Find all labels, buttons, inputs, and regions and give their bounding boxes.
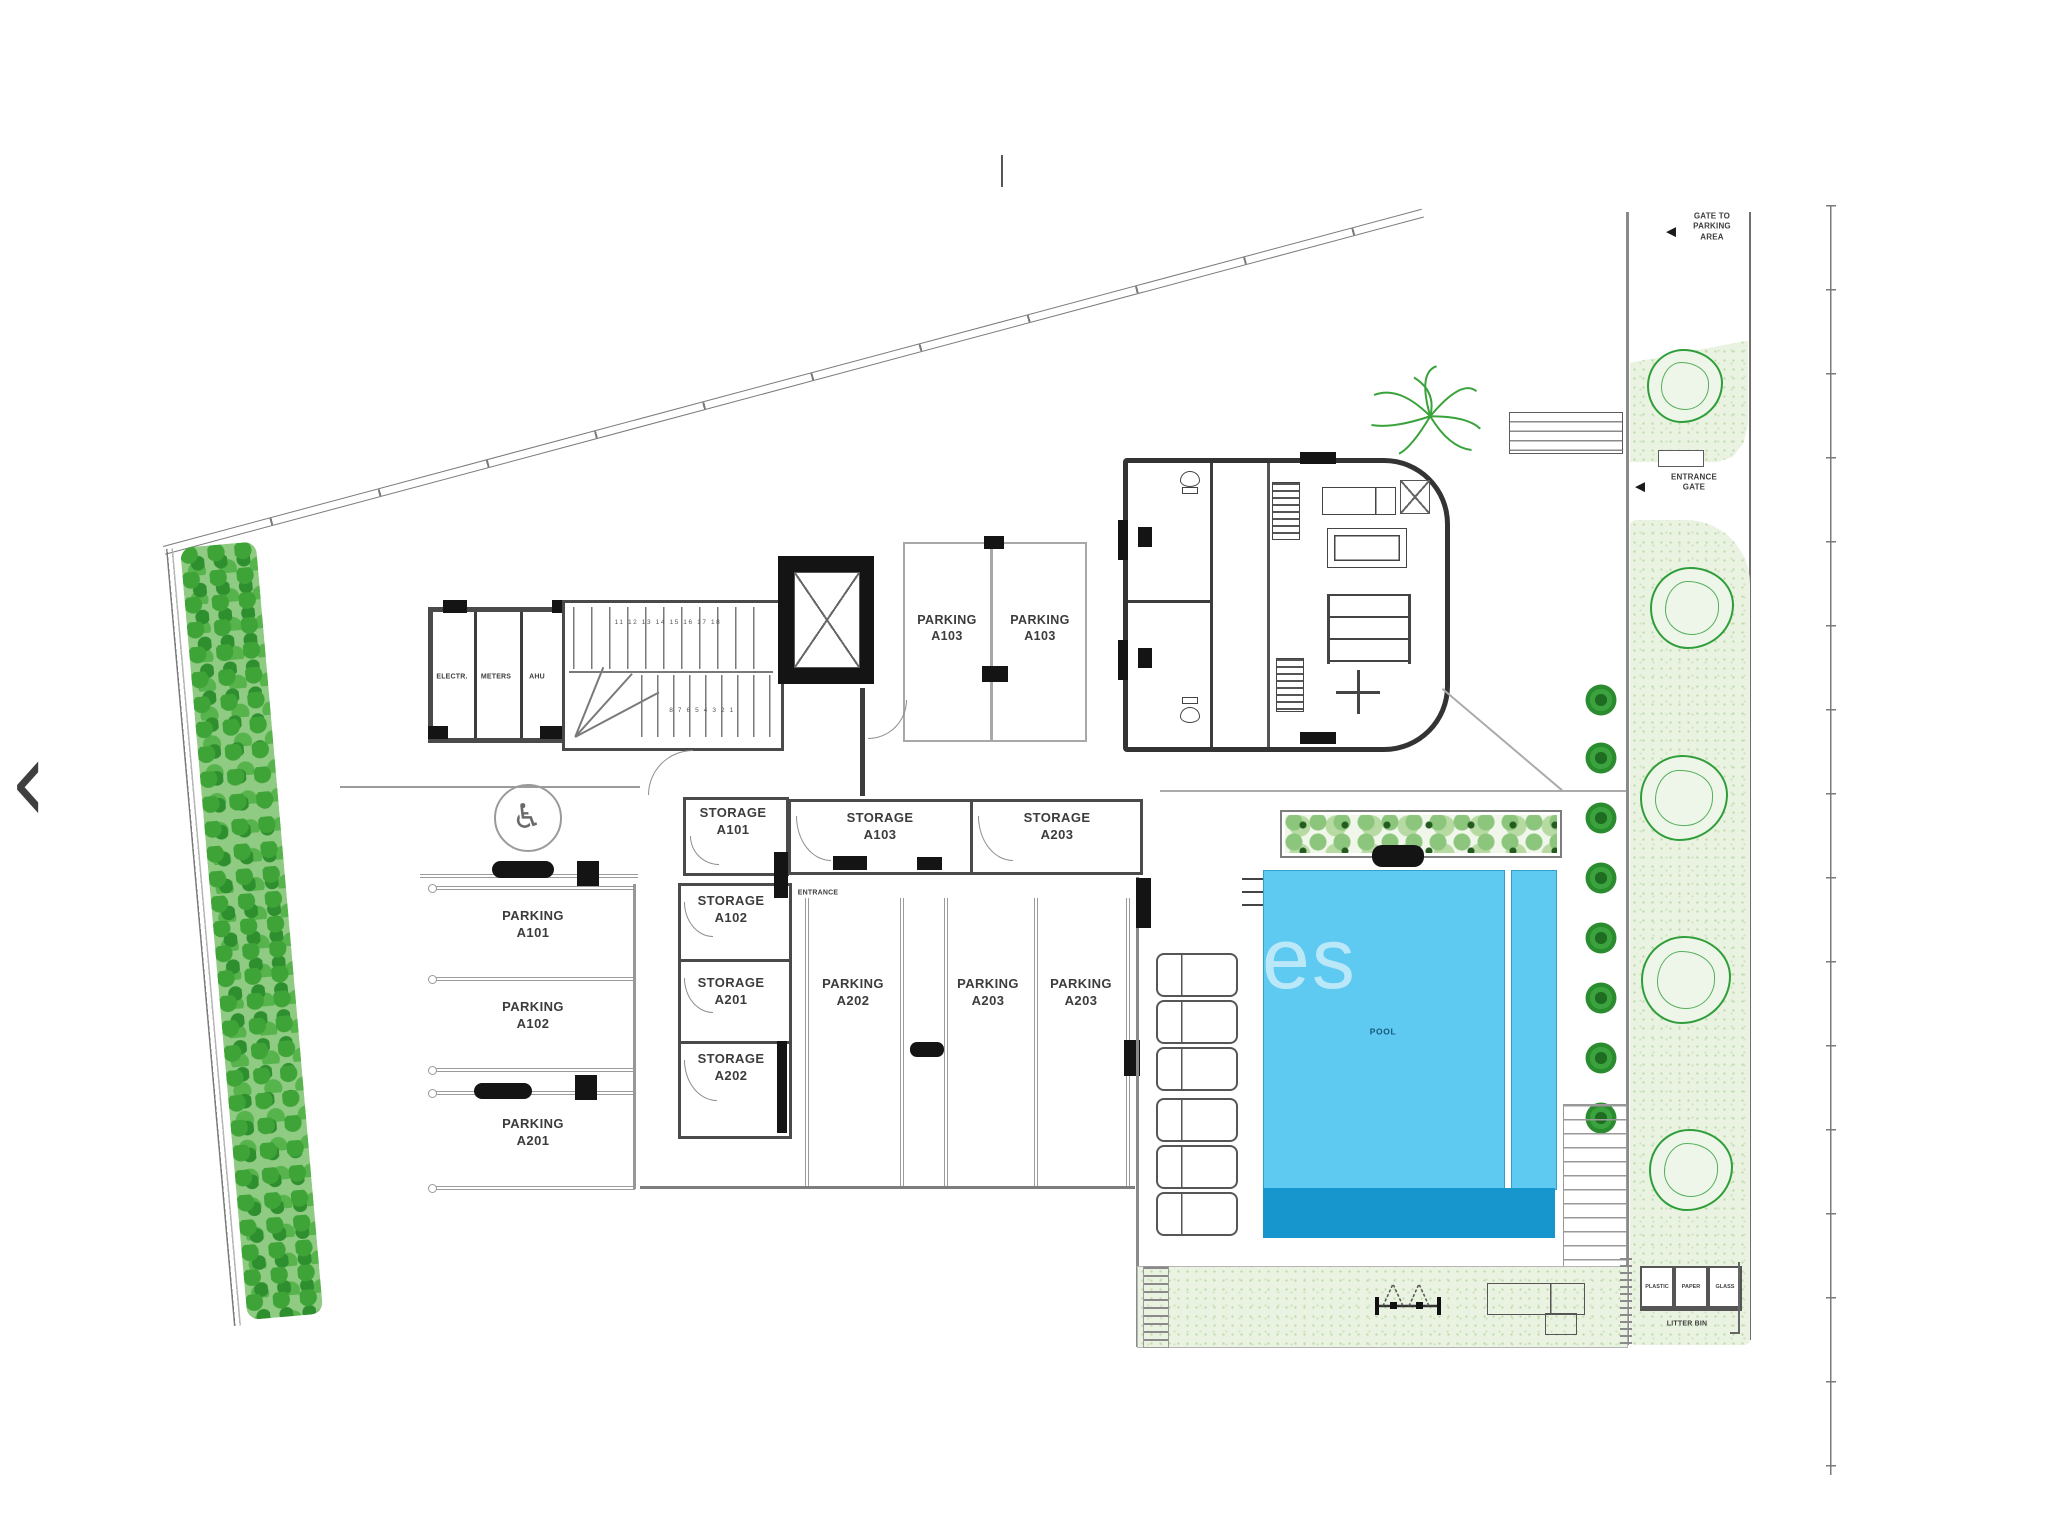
parking-a203-right-label: PARKING A203: [1050, 976, 1112, 1010]
wc-divider-wall: [1128, 600, 1213, 603]
parking-a201-label: PARKING A201: [502, 1116, 564, 1150]
room-label-ahu: AHU: [529, 672, 545, 681]
deck-diagonal-line: [1442, 688, 1563, 791]
dumbbell-rack: [1276, 658, 1304, 712]
stall-line-cap: [428, 1089, 437, 1098]
parking-a101-label: PARKING A101: [502, 908, 564, 942]
stall-line-cap: [428, 884, 437, 893]
picnic-table: [1487, 1283, 1585, 1315]
room-divider: [520, 612, 523, 738]
bracket-line: [1738, 1262, 1740, 1334]
parking-a102-label: PARKING A102: [502, 999, 564, 1033]
litter-bin-label: LITTER BIN: [1667, 1319, 1708, 1328]
wall-column: [428, 726, 448, 739]
pergola-bench: [1509, 412, 1623, 454]
bush-icon: [1582, 800, 1620, 836]
planter-box: [1658, 450, 1704, 467]
room-divider: [474, 612, 477, 738]
stall-line: [435, 886, 635, 890]
sink: [1138, 648, 1152, 668]
wheelchair-icon: ♿: [512, 797, 542, 837]
pool-lap-lane: [1511, 870, 1557, 1190]
floor-plan-canvas: ‹ GATE TO PARKING AREA ◀ ENTRANCE GATE ◀…: [0, 0, 2048, 1536]
previous-image-button[interactable]: ‹: [10, 725, 47, 840]
gate-arrow-icon: ◀: [1666, 225, 1676, 238]
stall-line: [340, 786, 640, 788]
stall-divider: [944, 898, 948, 1186]
bracket-foot: [1730, 1332, 1740, 1334]
stall-line: [435, 1068, 635, 1072]
bin-glass-label: GLASS: [1716, 1284, 1735, 1290]
terrace-steps: [1563, 1104, 1627, 1274]
stall-divider: [900, 898, 904, 1186]
room-label-meters: METERS: [481, 672, 511, 681]
wall-column: [1300, 732, 1336, 744]
wall-column: [577, 861, 599, 887]
swing-set-icon: [1373, 1278, 1443, 1336]
stall-line: [435, 1091, 635, 1095]
corridor-wall: [1267, 463, 1270, 747]
entrance-gate-label: ENTRANCE GATE: [1671, 473, 1717, 494]
room-label-electrical: ELECTR.: [436, 672, 467, 681]
road-survey-line: [1826, 205, 1836, 1475]
pool-label: POOL: [1370, 1026, 1397, 1037]
pool-bench: [1372, 845, 1424, 867]
bush-icon: [1582, 1040, 1620, 1076]
hatched-band: [1143, 1266, 1169, 1348]
door-sill: [833, 856, 867, 870]
sun-lounger: [1156, 1000, 1238, 1044]
dumbbell-rack: [1272, 482, 1300, 540]
bush-icon: [1582, 980, 1620, 1016]
wall-column: [1300, 452, 1336, 464]
palm-plant-icon: [1358, 360, 1490, 460]
toilet-icon: [1180, 471, 1200, 487]
storage-a103-label: STORAGE A103: [847, 810, 914, 844]
stall-divider: [805, 898, 809, 1186]
parking-a103-left-label: PARKING A103: [917, 612, 977, 645]
bin-paper-label: PAPER: [1682, 1284, 1701, 1290]
gate-to-parking-label: GATE TO PARKING AREA: [1693, 211, 1731, 242]
cross-machine: [1336, 670, 1380, 714]
stall-divider: [1034, 898, 1038, 1186]
squat-rack: [1327, 594, 1411, 664]
stall-line-cap: [428, 1184, 437, 1193]
wall-column: [774, 852, 788, 898]
bush-icon: [1582, 860, 1620, 896]
stall-line: [435, 1186, 635, 1190]
picnic-seat: [1545, 1313, 1577, 1335]
bush-icon: [1582, 920, 1620, 956]
car-stopper: [474, 1083, 532, 1099]
wall-column: [575, 1075, 597, 1100]
parking-a202-label: PARKING A202: [822, 976, 884, 1010]
entrance-label: ENTRANCE: [798, 888, 839, 897]
wall-column: [1118, 520, 1128, 560]
car-stopper: [984, 536, 1004, 549]
treadmill: [1322, 487, 1396, 515]
car-stopper: [982, 666, 1008, 682]
bin-plastic: PLASTIC: [1640, 1266, 1674, 1311]
car-stopper: [910, 1042, 944, 1057]
stair-numbers-lower: 8 7 6 5 4 3 2 1: [669, 707, 735, 715]
stair-steps-upper: [573, 607, 771, 669]
bin-plastic-label: PLASTIC: [1645, 1284, 1669, 1290]
wall-column: [443, 600, 467, 613]
door-swing-arc: [868, 700, 907, 739]
wall-column: [1118, 640, 1128, 680]
stall-divider: [990, 544, 993, 740]
door-swing-arc: [648, 750, 693, 795]
parking-a103-right-label: PARKING A103: [1010, 612, 1070, 645]
gym-bench: [1327, 528, 1407, 568]
building-south-edge: [640, 1186, 1135, 1189]
toilet-tank: [1182, 487, 1198, 494]
storage-a101-label: STORAGE A101: [700, 805, 767, 839]
stair-numbers-upper: 11 12 13 14 15 16 17 18: [615, 619, 722, 627]
stall-line-cap: [428, 1066, 437, 1075]
stall-line: [435, 977, 635, 981]
survey-tick: [1001, 155, 1003, 187]
bin-paper: PAPER: [1674, 1266, 1708, 1311]
parking-a203-left-label: PARKING A203: [957, 976, 1019, 1010]
entrance-gate-arrow-icon: ◀: [1635, 480, 1645, 493]
sun-lounger: [1156, 1047, 1238, 1091]
storage-a203-label: STORAGE A203: [1024, 810, 1091, 844]
toilet-icon: [1180, 707, 1200, 723]
bush-icon: [1582, 740, 1620, 776]
door-sill: [917, 857, 942, 870]
deck-edge-line: [1160, 790, 1626, 792]
watermark-text: es: [1262, 916, 1357, 1002]
hatched-strip: [1620, 1258, 1632, 1344]
sink: [1138, 527, 1152, 547]
gym-machine: [1400, 480, 1430, 514]
wall-segment: [777, 1041, 787, 1133]
car-stopper: [492, 861, 554, 878]
bin-glass: GLASS: [1708, 1266, 1742, 1311]
lobby-wall: [860, 688, 865, 796]
sun-lounger: [1156, 1098, 1238, 1142]
toilet-tank: [1182, 697, 1198, 704]
stall-line-cap: [428, 975, 437, 984]
elevator-cab-icon: [794, 572, 860, 668]
sun-lounger: [1156, 1145, 1238, 1189]
sun-lounger: [1156, 953, 1238, 997]
wc-divider-wall: [1210, 463, 1213, 747]
sun-lounger: [1156, 1192, 1238, 1236]
wall-column: [1136, 878, 1151, 928]
bush-icon: [1582, 682, 1620, 718]
pool-deep-edge: [1263, 1188, 1555, 1238]
drive-aisle-line: [633, 884, 636, 1189]
